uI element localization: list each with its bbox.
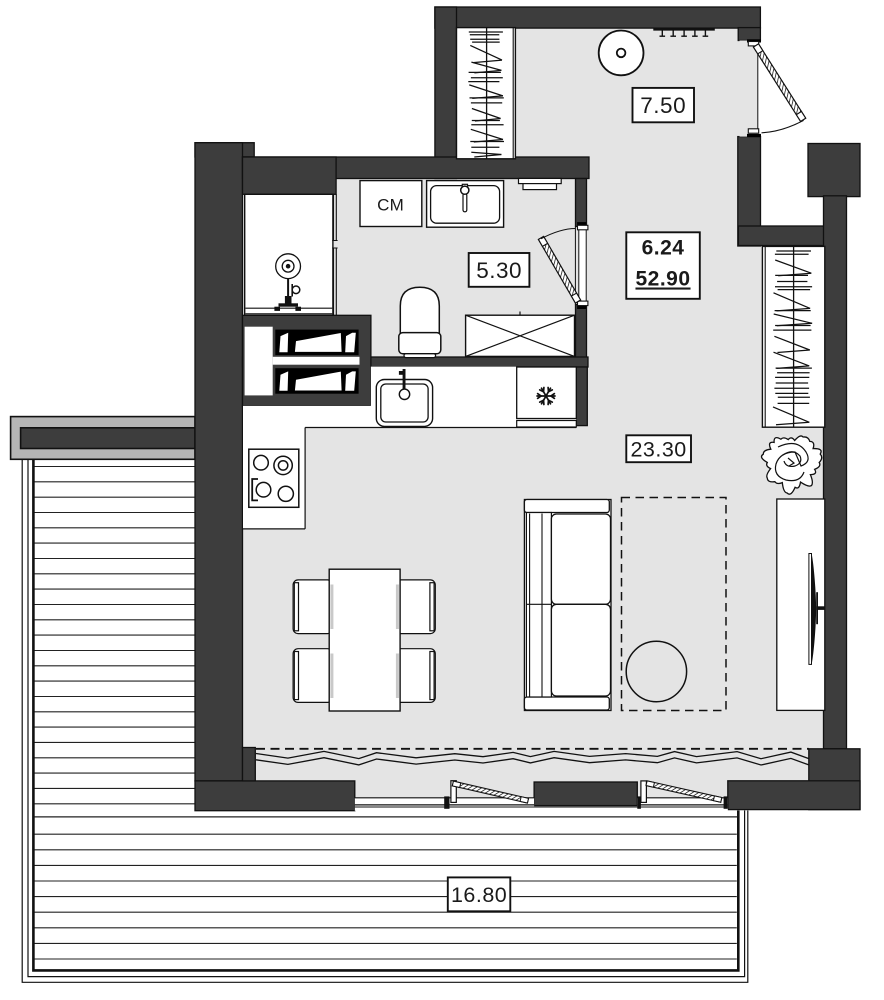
svg-text:7.50: 7.50 xyxy=(640,93,686,118)
svg-text:52.90: 52.90 xyxy=(635,268,690,291)
svg-text:СМ: СМ xyxy=(377,196,404,215)
svg-text:6.24: 6.24 xyxy=(642,237,685,260)
svg-text:5.30: 5.30 xyxy=(476,258,522,283)
svg-text:23.30: 23.30 xyxy=(630,437,686,461)
svg-text:16.80: 16.80 xyxy=(451,883,507,907)
